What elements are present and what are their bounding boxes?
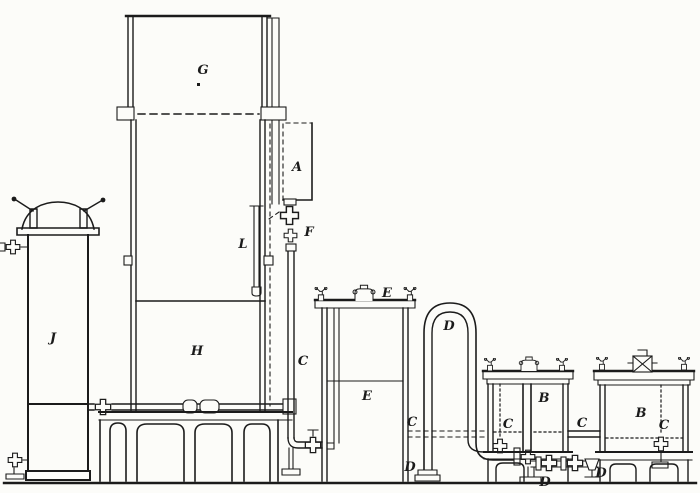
overflow-tube-l [250, 206, 263, 296]
tower-plinth [99, 412, 292, 481]
right-b-wingbolt-right-icon [678, 357, 689, 370]
label-c-between-b: C [577, 416, 588, 431]
label-h-inner-tank: H [190, 344, 204, 359]
valve-f-wheel-icon [284, 229, 297, 242]
tank-e-dip-tube [327, 308, 339, 449]
vessel-j-side-valve-icon [6, 240, 20, 254]
valve-f-bottom-flange [286, 244, 296, 251]
tower-shoulder-left [117, 107, 134, 120]
right-b-base-arches [600, 460, 688, 481]
vessel-j-drain-valve-icon [8, 453, 22, 467]
vessel-j-flange [17, 228, 99, 235]
label-c-inside-left-b: C [503, 417, 514, 432]
bottom-valve-1-icon [541, 455, 556, 470]
right-b-wingbolt-left-icon [596, 357, 607, 370]
tank-e-inlet-valve-icon [305, 437, 320, 452]
tower-lug-left [124, 256, 132, 265]
label-c-inside-right-b: C [659, 418, 670, 433]
label-b-right-vessel: B [635, 406, 647, 421]
tower-lug-right [264, 256, 273, 265]
right-b-internal-valve-icon [654, 437, 668, 451]
right-b-lid-fitting-icon [628, 350, 657, 372]
vessel-j-body [26, 235, 90, 480]
pipe-c-between-b [568, 431, 600, 437]
label-a-side-box: A [290, 160, 302, 175]
label-l-tube: L [237, 237, 247, 252]
valve-f-dashed-link [266, 212, 279, 221]
label-b-left-vessel: B [538, 391, 550, 406]
u-pipe-foot [415, 470, 440, 481]
left-b-lid-fitting-icon [519, 357, 539, 371]
label-g-gasholder: G [197, 63, 208, 78]
left-b-internal-valve-icon [493, 439, 507, 453]
label-f-valve: F [303, 225, 314, 240]
label-c-left-of-upipe: C [407, 415, 418, 430]
downpipe-c-drain-leg [282, 448, 300, 475]
tank-e [315, 285, 416, 481]
label-e-lid: E [381, 286, 393, 301]
label-c-downpipe: C [298, 354, 309, 369]
left-b-inner-tube [523, 384, 531, 452]
valve-f [266, 199, 298, 251]
left-b-wingbolt-right-icon [556, 358, 567, 371]
plinth-arches [100, 420, 278, 481]
tank-e-inlet-valve-stem [308, 430, 318, 436]
valve-f-top-flange [284, 199, 296, 205]
label-j-vessel: J [47, 331, 57, 346]
left-b-cornice-lines [483, 371, 573, 384]
apparatus-diagram: GAFLJHCEEDCDCBCBCDD [0, 0, 700, 493]
tank-e-lid-fitting-icon [353, 285, 375, 301]
u-pipe-d [415, 303, 535, 481]
valve-f-cross-icon [281, 207, 299, 225]
clamp-handle-tip-right [101, 198, 106, 203]
dashed-pipe-e-to-b [408, 431, 486, 437]
tower-shoulder-right [261, 107, 286, 120]
engraving-page: GAFLJHCEEDCDCBCBCDD [0, 0, 700, 493]
label-e-tank: E [361, 389, 373, 404]
bottom-flange-2 [561, 457, 566, 470]
bottom-valve-2-icon [567, 455, 582, 470]
vessel-j-dome [22, 202, 94, 229]
bottom-flange-1 [536, 457, 541, 470]
label-d-bottom-center: D [538, 475, 551, 490]
right-b-cornice-lines [594, 371, 694, 385]
left-b-wingbolt-left-icon [484, 358, 495, 371]
label-d-upipe-foot: D [403, 460, 416, 475]
label-g-period [197, 83, 200, 86]
u-pipe-inner [432, 312, 517, 478]
label-d-upipe-top: D [442, 319, 455, 334]
label-d-bottom-valves: D [594, 466, 607, 481]
tower-lower-walls [131, 120, 265, 412]
clamp-handle-tip-left [12, 197, 17, 202]
